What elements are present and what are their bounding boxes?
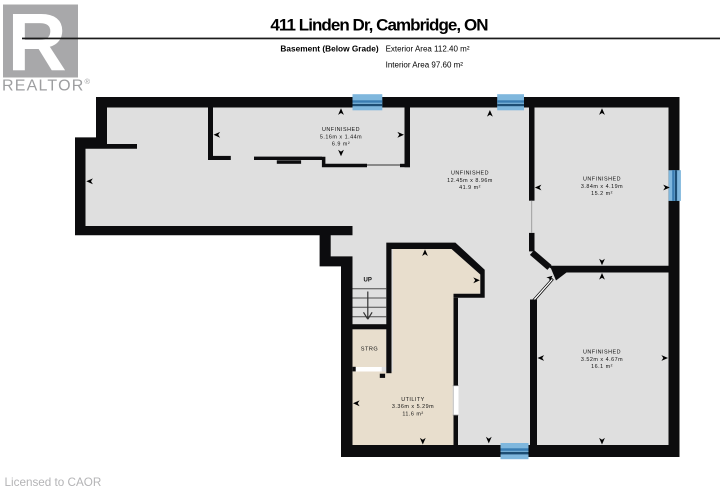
svg-text:Exterior Area 112.40 m²: Exterior Area 112.40 m² <box>386 44 470 53</box>
svg-text:REALTOR®: REALTOR® <box>2 77 91 95</box>
svg-text:411 Linden Dr, Cambridge, ON: 411 Linden Dr, Cambridge, ON <box>270 16 488 35</box>
svg-text:UNFINISHED: UNFINISHED <box>583 177 621 183</box>
svg-text:UNFINISHED: UNFINISHED <box>451 171 489 177</box>
svg-text:3.84m x 4.19m: 3.84m x 4.19m <box>581 184 623 190</box>
svg-text:3.36m x 5.29m: 3.36m x 5.29m <box>392 404 434 410</box>
svg-text:UTILITY: UTILITY <box>401 397 425 403</box>
svg-text:11.6 m²: 11.6 m² <box>402 411 423 417</box>
svg-text:16.1 m²: 16.1 m² <box>591 364 613 370</box>
svg-text:Licensed to CAOR: Licensed to CAOR <box>5 476 102 489</box>
svg-text:UNFINISHED: UNFINISHED <box>583 350 621 356</box>
svg-text:3.52m x 4.67m: 3.52m x 4.67m <box>581 357 623 363</box>
svg-text:6.9 m²: 6.9 m² <box>332 142 350 148</box>
svg-text:Interior Area 97.60 m²: Interior Area 97.60 m² <box>386 60 464 69</box>
svg-text:12.45m x 8.96m: 12.45m x 8.96m <box>447 178 493 184</box>
svg-text:R: R <box>8 0 67 89</box>
svg-text:STRG: STRG <box>361 347 379 353</box>
svg-text:UNFINISHED: UNFINISHED <box>322 127 360 133</box>
svg-text:UP: UP <box>364 278 372 284</box>
svg-text:5.16m x 1.44m: 5.16m x 1.44m <box>320 134 362 140</box>
svg-text:Basement (Below Grade): Basement (Below Grade) <box>280 43 378 53</box>
svg-text:15.2 m²: 15.2 m² <box>591 191 613 197</box>
svg-text:41.9 m²: 41.9 m² <box>459 185 481 191</box>
